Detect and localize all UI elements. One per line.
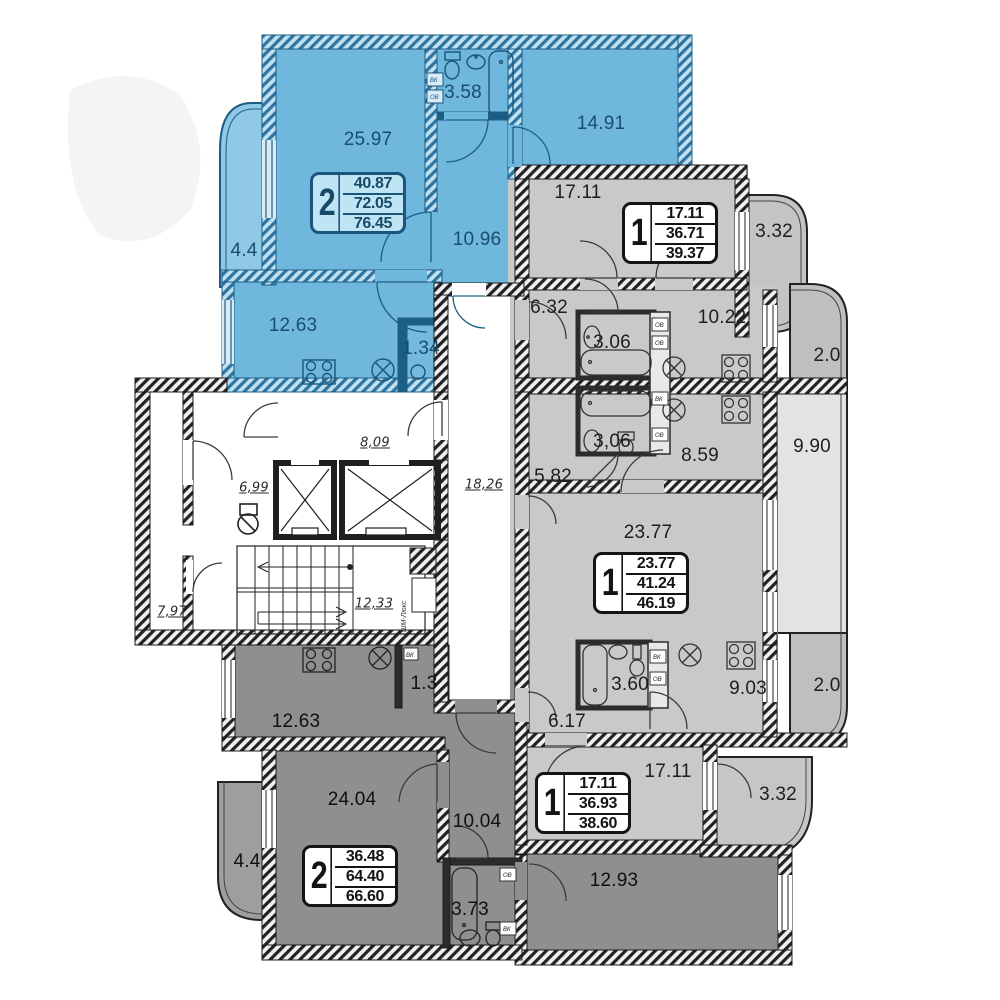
svg-text:ОВ: ОВ xyxy=(653,677,662,683)
room-label-loggia: 9.90 xyxy=(793,436,831,458)
core-label-corridor: 18,26 xyxy=(465,478,503,493)
room-label-bathroom: 3.58 xyxy=(444,82,482,104)
svg-text:ВК: ВК xyxy=(655,397,663,403)
room-label-balcony: 2.0 xyxy=(813,675,840,697)
total-area: 39.37 xyxy=(655,243,715,263)
room-label-living: 23.77 xyxy=(624,522,673,544)
apartment-type: 1 xyxy=(541,775,565,831)
room-label-storage: 1.34 xyxy=(402,338,440,360)
svg-text:ВК: ВК xyxy=(430,78,438,84)
balcony-2-0-upper xyxy=(790,284,847,392)
svg-text:ВК: ВК xyxy=(503,927,511,933)
core-label-lobby: 8,09 xyxy=(360,436,390,451)
svg-text:ВК: ВК xyxy=(406,653,414,659)
usable-area: 72.05 xyxy=(343,193,403,213)
room-label-bathroom: 3.73 xyxy=(451,899,489,921)
room-label-balcony2: 2.0 xyxy=(813,345,840,367)
room-label-hall: 10.96 xyxy=(453,229,502,251)
room-label-kitchen: 12.63 xyxy=(272,711,321,733)
room-label-bedroom: 14.91 xyxy=(577,113,626,135)
svg-text:ОВ: ОВ xyxy=(503,873,512,879)
room-label-living: 25.97 xyxy=(344,129,393,151)
room-label-bedroom: 12.93 xyxy=(590,870,639,892)
room-label-balcony: 4.4 xyxy=(230,240,257,262)
room-label-balcony: 3.32 xyxy=(755,221,793,243)
room-label-hall: 6.32 xyxy=(530,297,568,319)
svg-text:ОВ: ОВ xyxy=(430,95,439,101)
svg-text:ОВ: ОВ xyxy=(655,323,664,329)
total-area: 66.60 xyxy=(335,886,395,906)
apartment-card-1-room-top: 1 17.11 36.71 39.37 xyxy=(622,202,718,264)
apartment-type: 1 xyxy=(628,205,652,261)
room-label-hall: 10.04 xyxy=(453,811,502,833)
room-label-kitchen: 9.03 xyxy=(729,678,767,700)
svg-text:ОВ: ОВ xyxy=(655,341,664,347)
room-label-balcony2: 3.32 xyxy=(759,784,797,806)
apartment-type: 2 xyxy=(308,848,332,904)
apartment-card-1-room-bottom: 1 17.11 36.93 38.60 xyxy=(535,772,631,834)
room-label-balcony: 4.4 xyxy=(233,851,260,873)
watermark xyxy=(68,76,200,241)
chute-label: ШМ-Люкс xyxy=(401,600,408,632)
total-area: 46.19 xyxy=(626,593,686,613)
living-area: 23.77 xyxy=(626,555,686,573)
garbage-chute: ШМ-Люкс xyxy=(401,548,436,632)
usable-area: 36.93 xyxy=(568,793,628,813)
usable-area: 41.24 xyxy=(626,573,686,593)
core-label-stairwell: 12,33 xyxy=(355,597,393,612)
apartment-card-2-room-top: 2 40.87 72.05 76.45 xyxy=(310,172,406,234)
stairs xyxy=(237,546,425,634)
svg-text:ОВ: ОВ xyxy=(655,433,664,439)
floor-plan: ШМ-Люкс ВК ОВ ОВ ОВ ВК ОВ ВК ОВ ОВ ВК ВК… xyxy=(0,0,1000,1000)
room-label-hall: 5,82 xyxy=(534,466,572,488)
room-label-bathroom: 3.06 xyxy=(593,332,631,354)
apartment-type: 2 xyxy=(316,175,340,231)
usable-area: 64.40 xyxy=(335,866,395,886)
room-label-living: 24.04 xyxy=(328,789,377,811)
room-label-living: 17.11 xyxy=(644,761,691,783)
usable-area: 36.71 xyxy=(655,223,715,243)
room-label-kitchen: 8.59 xyxy=(681,445,719,467)
room-label-storage: 1.3 xyxy=(410,673,437,695)
total-area: 76.45 xyxy=(343,213,403,233)
room-label-kitchen: 10.22 xyxy=(698,307,747,329)
living-area: 40.87 xyxy=(343,175,403,193)
room-label-bathroom: 3.60 xyxy=(611,674,649,696)
floor-plan-drawing: ШМ-Люкс ВК ОВ ОВ ОВ ВК ОВ ВК ОВ ОВ ВК ВК xyxy=(0,0,1000,1000)
svg-text:ВК: ВК xyxy=(653,655,661,661)
room-label-living: 17.11 xyxy=(554,182,601,204)
room-label-hall: 6.17 xyxy=(548,711,586,733)
apartment-card-2-room-bottom: 2 36.48 64.40 66.60 xyxy=(302,845,398,907)
core-toilet-icon xyxy=(238,504,258,534)
balcony-3-32-bottom xyxy=(715,757,812,858)
living-area: 17.11 xyxy=(655,205,715,223)
living-area: 36.48 xyxy=(335,848,395,866)
loggia-9-90 xyxy=(777,392,847,633)
apartment-type: 1 xyxy=(599,555,623,611)
total-area: 38.60 xyxy=(568,813,628,833)
apartment-card-1-room-middle: 1 23.77 41.24 46.19 xyxy=(593,552,689,614)
core-label-left-room: 7,97 xyxy=(157,605,187,620)
living-area: 17.11 xyxy=(568,775,628,793)
room-label-bathroom: 3,06 xyxy=(593,431,631,453)
core-label-vestibule: 6,99 xyxy=(239,481,269,496)
elevators xyxy=(276,458,438,537)
room-label-kitchen: 12.63 xyxy=(269,315,318,337)
